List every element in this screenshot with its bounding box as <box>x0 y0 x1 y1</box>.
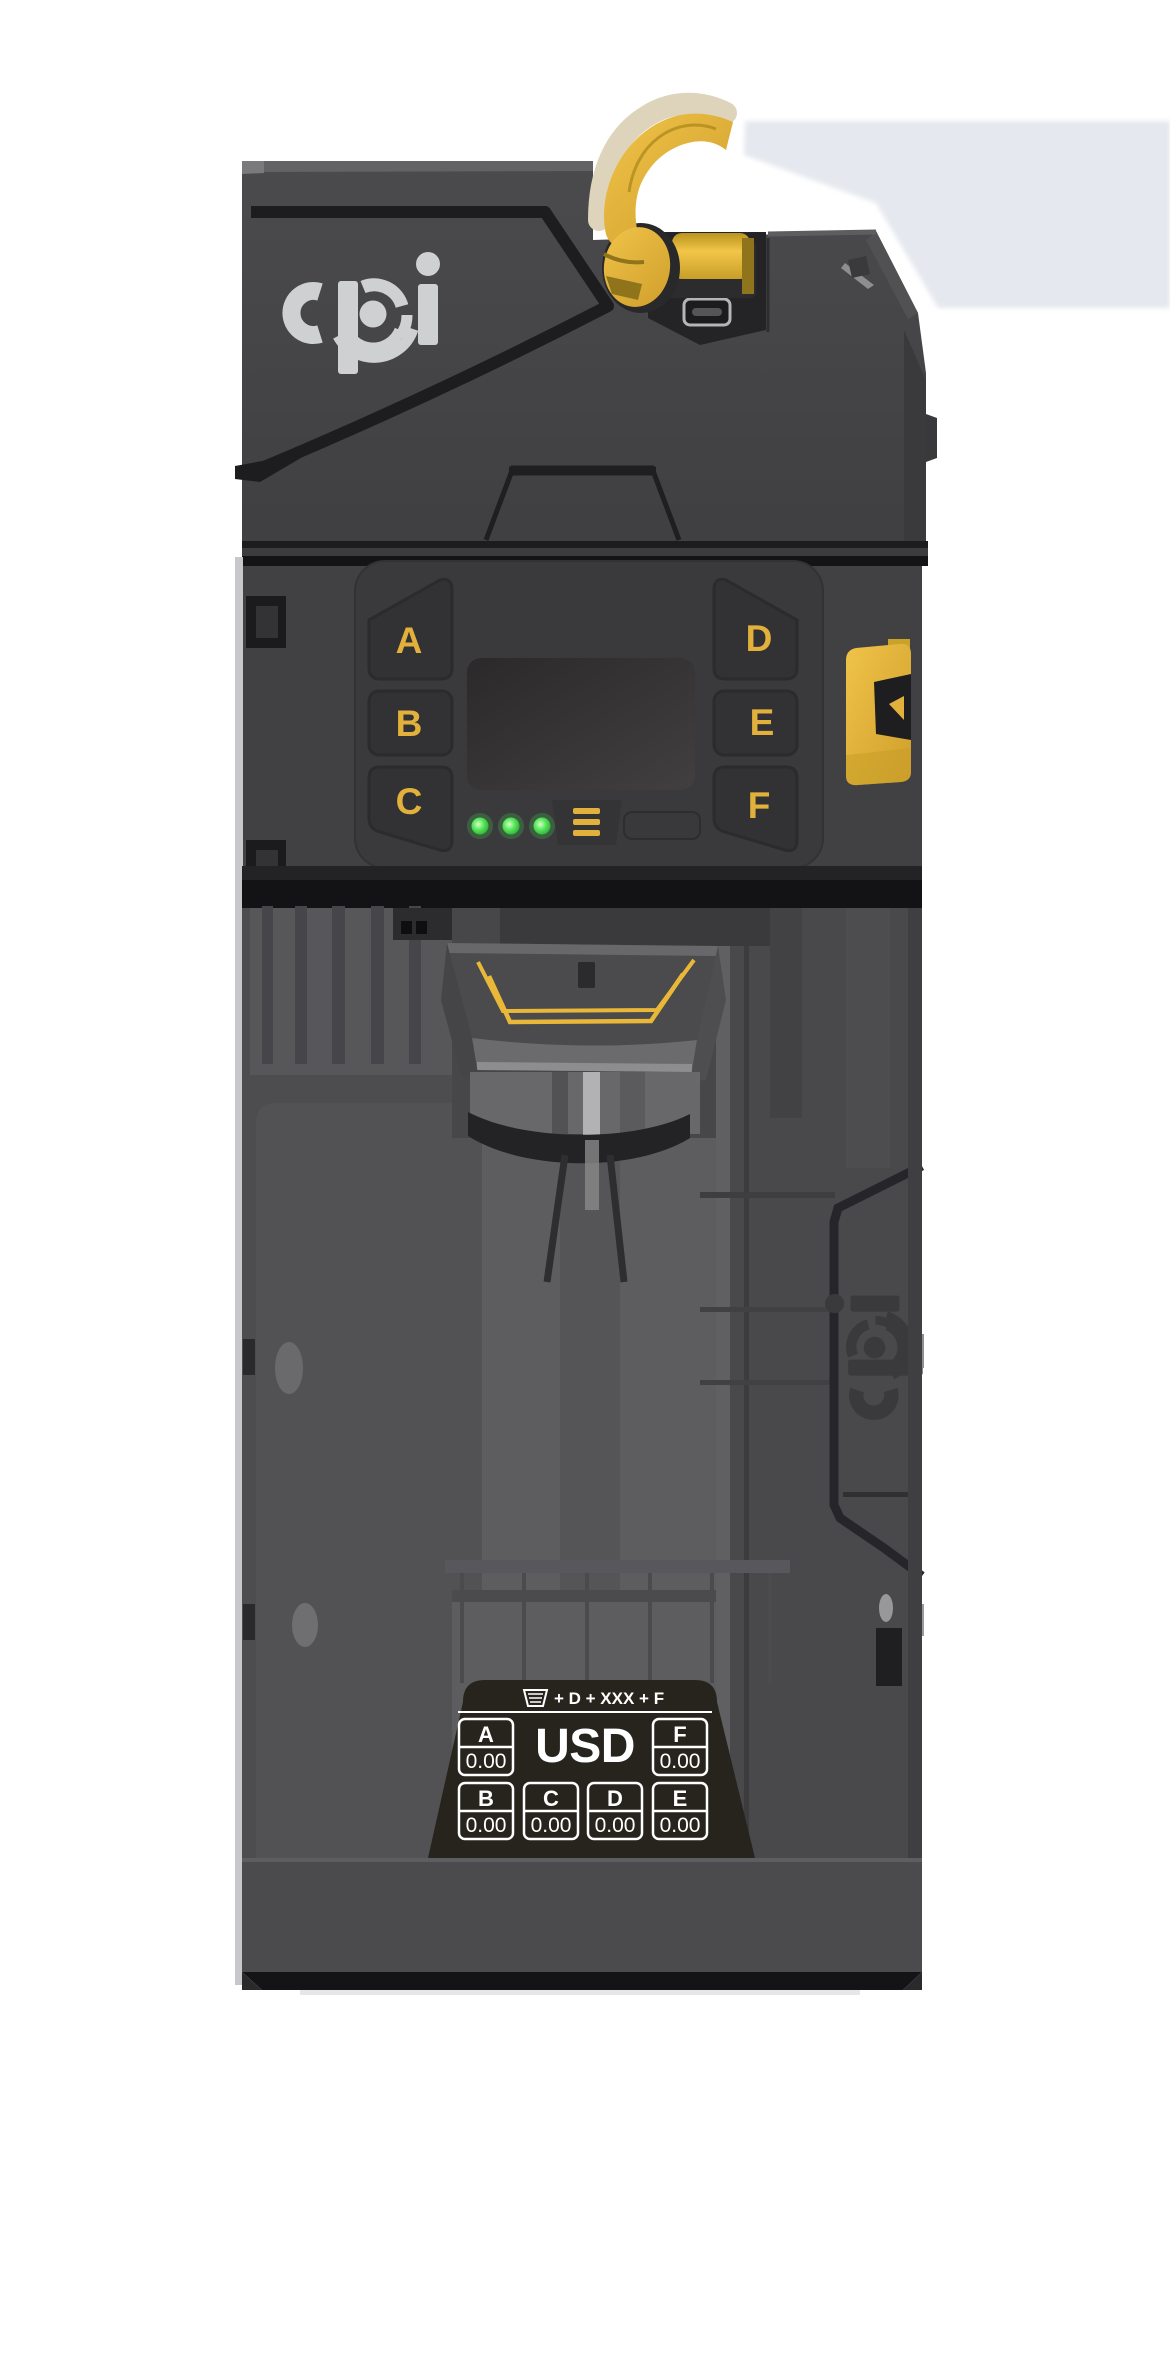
svg-text:0.00: 0.00 <box>660 1814 701 1837</box>
svg-text:B: B <box>396 703 423 744</box>
svg-text:C: C <box>543 1786 559 1811</box>
svg-text:0.00: 0.00 <box>595 1814 636 1837</box>
svg-text:USD: USD <box>535 1720 635 1773</box>
svg-text:F: F <box>673 1722 686 1747</box>
svg-text:C: C <box>396 781 423 822</box>
svg-text:0.00: 0.00 <box>466 1750 507 1773</box>
svg-text:A: A <box>396 620 423 661</box>
svg-text:0.00: 0.00 <box>466 1814 507 1837</box>
svg-text:B: B <box>478 1786 494 1811</box>
svg-text:E: E <box>750 702 775 743</box>
svg-text:E: E <box>673 1786 688 1811</box>
svg-text:D: D <box>607 1786 623 1811</box>
svg-text:0.00: 0.00 <box>660 1750 701 1773</box>
svg-text:D: D <box>746 618 773 659</box>
svg-text:A: A <box>478 1722 494 1747</box>
svg-text:0.00: 0.00 <box>531 1814 572 1837</box>
svg-text:F: F <box>748 785 771 826</box>
svg-text:+ D + XXX + F: + D + XXX + F <box>554 1689 664 1708</box>
